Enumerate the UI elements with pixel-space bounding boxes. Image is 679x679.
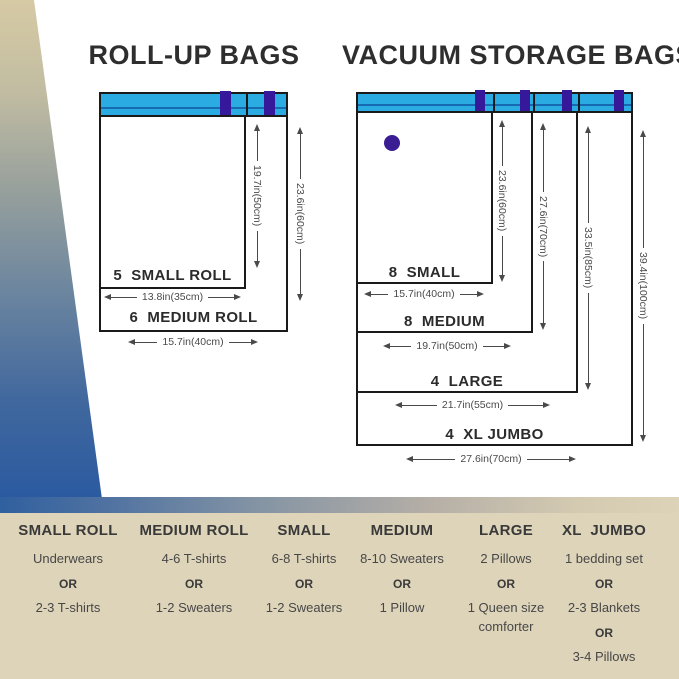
bag-edge-divider	[493, 94, 495, 111]
capacity-item: 1-2 Sweaters	[134, 599, 254, 618]
zip-track-line	[101, 107, 286, 109]
capacity-item: Underwears	[8, 550, 128, 569]
seal-clip-icon	[562, 90, 572, 111]
capacity-column-header: MEDIUM ROLL	[134, 522, 254, 540]
seal-clip-icon	[475, 90, 485, 111]
arrow-right-icon	[234, 294, 241, 300]
vacuum-large-label: 4 LARGE	[356, 373, 578, 390]
rollup-small-height-dimension: 19.7in(50cm)	[250, 124, 264, 268]
gradient-divider-strip	[0, 497, 679, 513]
or-separator: OR	[134, 577, 254, 591]
vacuum-small-width-dimension: 15.7in(40cm)	[364, 288, 484, 300]
arrow-left-icon	[104, 294, 111, 300]
arrow-down-icon	[540, 323, 546, 330]
vacuum-xl-label: 4 XL JUMBO	[356, 426, 633, 443]
arrow-right-icon	[543, 402, 550, 408]
rollup-small-width-dimension: 13.8in(35cm)	[104, 291, 241, 303]
vacuum-section-title: VACUUM STORAGE BAGS	[342, 40, 662, 71]
arrow-down-icon	[640, 435, 646, 442]
arrow-down-icon	[254, 261, 260, 268]
bag-edge-divider	[246, 94, 248, 115]
air-valve-icon	[384, 135, 400, 151]
rollup-small-label: 5 SMALL ROLL	[99, 267, 246, 284]
arrow-right-icon	[569, 456, 576, 462]
vacuum-xl-height-dimension: 39.4in(100cm)	[636, 130, 650, 442]
rollup-zip-seal-strip	[99, 92, 288, 117]
arrow-left-icon	[395, 402, 402, 408]
arrow-down-icon	[499, 275, 505, 282]
dimension-text: 15.7in(40cm)	[157, 336, 228, 348]
dimension-text: 27.6in(70cm)	[537, 192, 549, 261]
arrow-up-icon	[540, 123, 546, 130]
arrow-up-icon	[640, 130, 646, 137]
vacuum-small-label: 8 SMALL	[356, 264, 493, 281]
arrow-down-icon	[297, 294, 303, 301]
arrow-up-icon	[585, 126, 591, 133]
arrow-up-icon	[297, 127, 303, 134]
dimension-text: 23.6in(60cm)	[294, 179, 306, 248]
or-separator: OR	[542, 577, 666, 591]
capacity-item: 4-6 T-shirts	[134, 550, 254, 569]
rollup-section-title: ROLL-UP BAGS	[59, 40, 329, 71]
arrow-up-icon	[499, 120, 505, 127]
dimension-text: 39.4in(100cm)	[637, 248, 649, 323]
capacity-column-header: SMALL ROLL	[8, 522, 128, 540]
dimension-text: 13.8in(35cm)	[137, 291, 208, 303]
rollup-medium-label: 6 MEDIUM ROLL	[99, 309, 288, 326]
seal-clip-icon	[220, 91, 231, 115]
dimension-text: 23.6in(60cm)	[496, 166, 508, 235]
dimension-text: 15.7in(40cm)	[388, 288, 459, 300]
dimension-text: 19.7in(50cm)	[251, 161, 263, 230]
or-separator: OR	[8, 577, 128, 591]
vacuum-large-height-dimension: 33.5in(85cm)	[581, 126, 595, 390]
infographic-canvas: ROLL-UP BAGS VACUUM STORAGE BAGS 5 SMALL…	[0, 0, 679, 679]
rollup-small-bag-outline	[99, 92, 246, 289]
vacuum-small-bag-outline	[356, 92, 493, 284]
capacity-column-header: XL JUMBO	[542, 522, 666, 540]
dimension-text: 27.6in(70cm)	[455, 453, 526, 465]
capacity-column-xl-jumbo: XL JUMBO 1 bedding set OR 2-3 Blankets O…	[542, 522, 666, 675]
arrow-left-icon	[383, 343, 390, 349]
dimension-text: 33.5in(85cm)	[582, 223, 594, 292]
arrow-left-icon	[406, 456, 413, 462]
capacity-column-small-roll: SMALL ROLL Underwears OR 2-3 T-shirts	[8, 522, 128, 626]
capacity-column-medium-roll: MEDIUM ROLL 4-6 T-shirts OR 1-2 Sweaters	[134, 522, 254, 626]
diagonal-gradient-backdrop	[0, 0, 112, 499]
arrow-right-icon	[251, 339, 258, 345]
seal-clip-icon	[614, 90, 624, 111]
arrow-left-icon	[128, 339, 135, 345]
dimension-text: 19.7in(50cm)	[411, 340, 482, 352]
arrow-right-icon	[477, 291, 484, 297]
vacuum-xl-width-dimension: 27.6in(70cm)	[406, 453, 576, 465]
capacity-item: 2-3 T-shirts	[8, 599, 128, 618]
vacuum-medium-width-dimension: 19.7in(50cm)	[383, 340, 511, 352]
seal-clip-icon	[520, 90, 530, 111]
capacity-item: 2-3 Blankets	[542, 599, 666, 618]
or-separator: OR	[542, 626, 666, 640]
arrow-right-icon	[504, 343, 511, 349]
vacuum-zip-seal-strip	[356, 92, 633, 113]
arrow-up-icon	[254, 124, 260, 131]
vacuum-large-width-dimension: 21.7in(55cm)	[395, 399, 550, 411]
arrow-down-icon	[585, 383, 591, 390]
vacuum-small-height-dimension: 23.6in(60cm)	[495, 120, 509, 282]
vacuum-medium-label: 8 MEDIUM	[356, 313, 533, 330]
dimension-text: 21.7in(55cm)	[437, 399, 508, 411]
bag-edge-divider	[578, 94, 580, 111]
bag-edge-divider	[533, 94, 535, 111]
seal-clip-icon	[264, 91, 275, 115]
rollup-medium-width-dimension: 15.7in(40cm)	[128, 336, 258, 348]
vacuum-medium-height-dimension: 27.6in(70cm)	[536, 123, 550, 330]
capacity-item: 3-4 Pillows	[542, 648, 666, 667]
arrow-left-icon	[364, 291, 371, 297]
rollup-medium-height-dimension: 23.6in(60cm)	[293, 127, 307, 301]
capacity-item: 1 bedding set	[542, 550, 666, 569]
